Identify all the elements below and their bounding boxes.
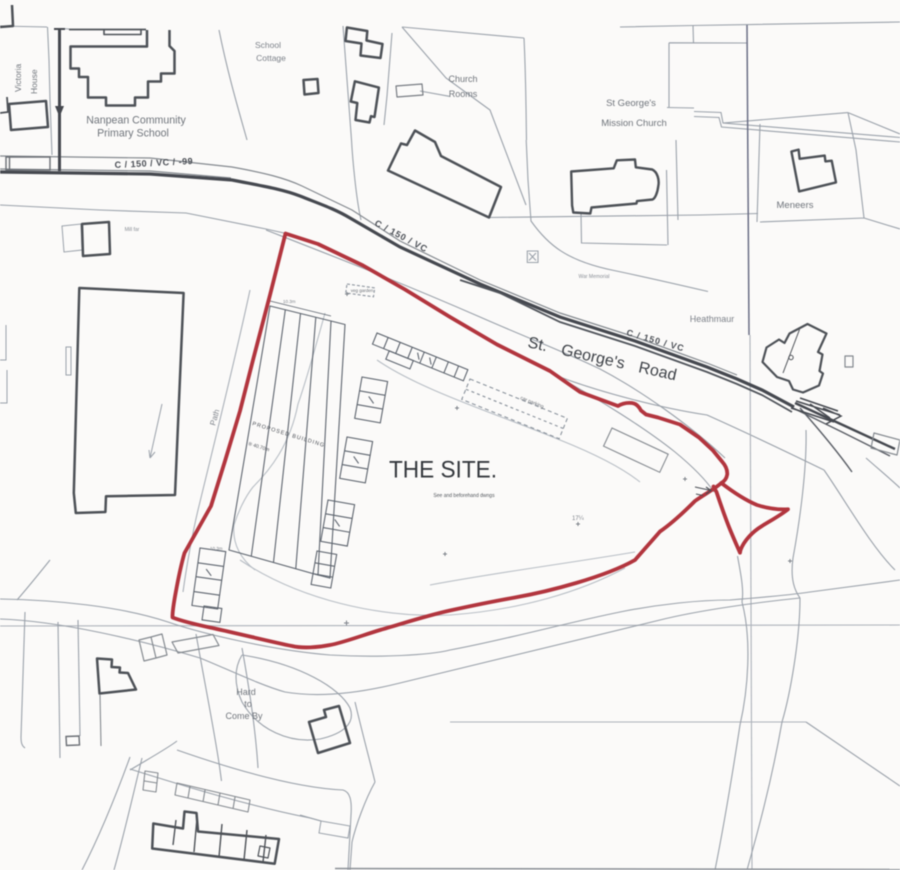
- svg-text:17¼: 17¼: [572, 516, 585, 522]
- svg-text:Primary School: Primary School: [97, 128, 169, 140]
- svg-text:Mill far: Mill far: [125, 227, 140, 233]
- svg-text:10.3m: 10.3m: [283, 299, 296, 304]
- svg-text:House: House: [29, 69, 39, 94]
- svg-text:Heathmaur: Heathmaur: [690, 314, 735, 324]
- svg-text:Meneers: Meneers: [777, 200, 814, 211]
- svg-text:Rooms: Rooms: [449, 89, 478, 99]
- svg-text:St George's: St George's: [606, 98, 656, 109]
- svg-text:School: School: [255, 40, 281, 50]
- svg-text:Victoria: Victoria: [13, 64, 23, 92]
- svg-text:THE SITE.: THE SITE.: [389, 457, 497, 484]
- svg-text:Cottage: Cottage: [256, 53, 286, 63]
- svg-text:Mission Church: Mission Church: [601, 118, 666, 129]
- svg-text:War Memorial: War Memorial: [579, 274, 610, 280]
- svg-text:Nanpean Community: Nanpean Community: [86, 115, 186, 127]
- svg-text:See and beforehand dwngs: See and beforehand dwngs: [433, 493, 495, 499]
- svg-text:Come By: Come By: [225, 711, 263, 721]
- svg-text:to: to: [244, 699, 252, 709]
- svg-text:Hard: Hard: [236, 687, 256, 697]
- svg-text:Church: Church: [448, 74, 477, 84]
- svg-text:veg garden: veg garden: [351, 288, 374, 293]
- svg-text:10.3m: 10.3m: [210, 546, 223, 551]
